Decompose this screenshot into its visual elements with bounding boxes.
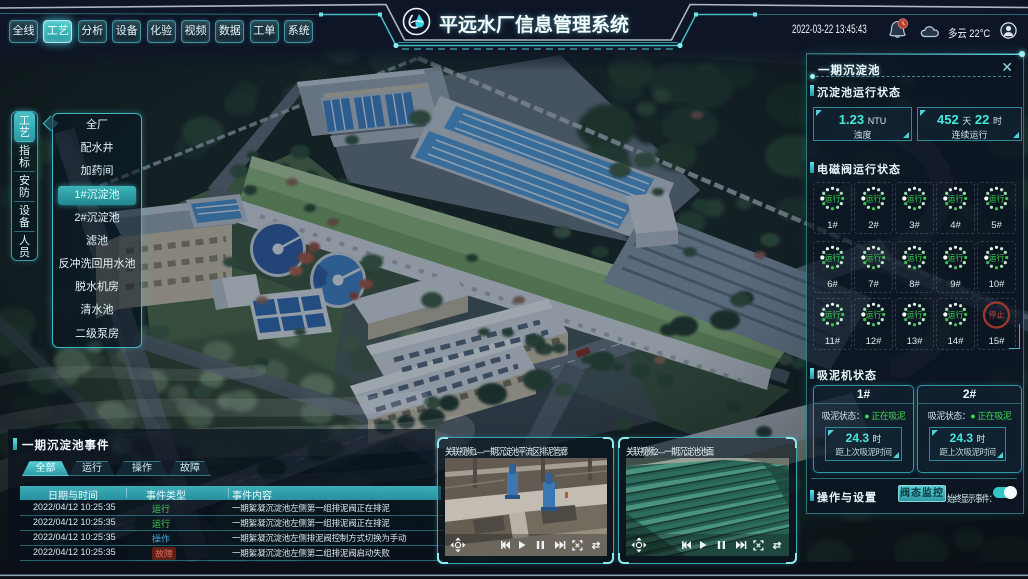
svg-text:运行: 运行 [866, 253, 882, 263]
svg-text:运行: 运行 [948, 253, 964, 263]
svg-text:运行: 运行 [825, 253, 841, 263]
svg-text:停止: 停止 [989, 310, 1005, 320]
svg-text:运行: 运行 [948, 310, 964, 320]
svg-text:运行: 运行 [907, 253, 923, 263]
svg-text:运行: 运行 [907, 194, 923, 204]
svg-text:运行: 运行 [866, 310, 882, 320]
svg-text:运行: 运行 [907, 310, 923, 320]
svg-text:运行: 运行 [989, 253, 1005, 263]
svg-text:运行: 运行 [825, 310, 841, 320]
svg-text:运行: 运行 [948, 194, 964, 204]
svg-text:运行: 运行 [825, 194, 841, 204]
svg-text:运行: 运行 [989, 194, 1005, 204]
svg-text:运行: 运行 [866, 194, 882, 204]
